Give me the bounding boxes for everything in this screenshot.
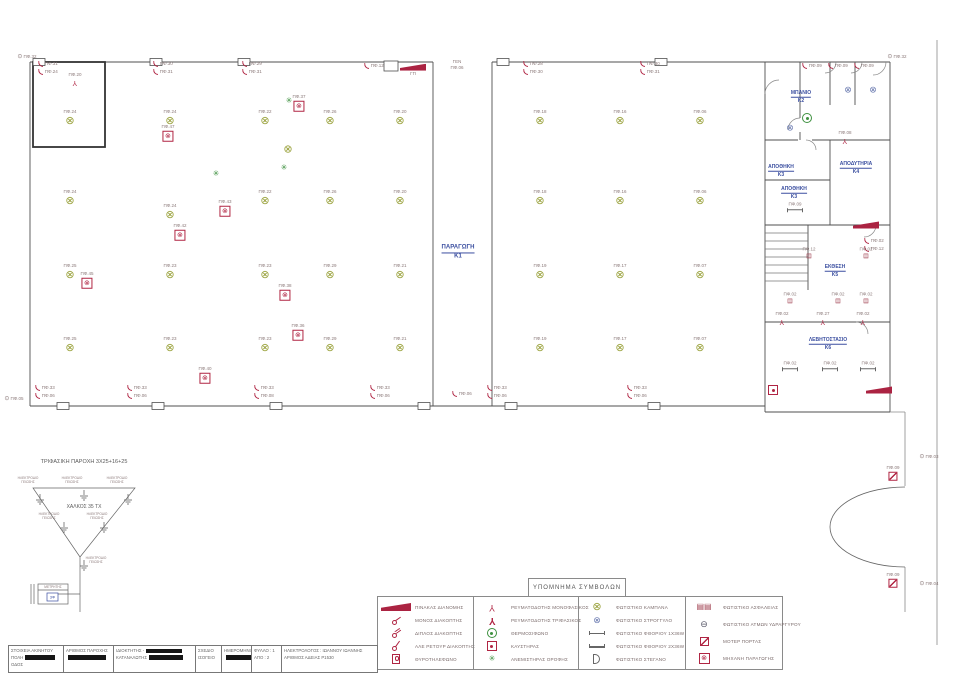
title-block-cell: ΗΛΕΚΤΡΟΛΟΓΟΣ : ΙΩΑΝΝΟΥ ΙΩΑΝΝΗΣΑΡΙΘΜΟΣ ΑΔ… xyxy=(281,646,377,672)
title-block-cell: ΣΤΟΙΧΕΙΑ ΑΚΙΝΗΤΟΥΠΟΛΗΟΔΟΣ xyxy=(9,646,63,672)
motor-icon xyxy=(689,637,719,646)
title-block-cell: ΙΔΙΟΚΤΗΤΗΣ -ΚΑΤΑΝΑΛΩΤΗΣ xyxy=(113,646,195,672)
legend-entry-thermo: ΘΕΡΜΟΣΙΦΩΝΟ xyxy=(477,627,576,639)
symbol-legend: ΠΙΝΑΚΑΣ ΔΙΑΝΟΜΗΣΜΟΝΟΣ ΔΙΑΚΟΠΤΗΣΔΙΠΛΟΣ ΔΙ… xyxy=(377,596,783,670)
switch2-icon xyxy=(381,629,411,638)
title-block-cell: ΑΡΙΘΜΟΣ ΠΑΡΟΧΗΣ xyxy=(63,646,113,672)
meter-type-label: 3Φ xyxy=(50,595,55,600)
round-icon: ⊗ xyxy=(582,616,612,625)
supply-title: ΤΡΙΦΑΣΙΚΗ ΠΑΡΟΧΗ 3Χ25+16+25 xyxy=(41,459,128,465)
ground-electrode-label: ΗΛΕΚΤΡΟΔΙΟ ΓΕΙΩΣΗΣ xyxy=(83,556,109,564)
legend-column: ΠΙΝΑΚΑΣ ΔΙΑΝΟΜΗΣΜΟΝΟΣ ΔΙΑΚΟΠΤΗΣΔΙΠΛΟΣ ΔΙ… xyxy=(378,597,473,669)
legend-entry-fan: ✳ΑΝΕΜΙΣΤΗΡΑΣ ΟΡΟΦΗΣ xyxy=(477,653,576,665)
light-icon: ⊗ xyxy=(582,602,612,613)
ground-electrode-label: ΗΛΕΚΤΡΟΔΙΟ ΓΕΙΩΣΗΣ xyxy=(15,476,41,484)
ground-electrode-label: ΗΛΕΚΤΡΟΔΙΟ ΓΕΙΩΣΗΣ xyxy=(84,512,110,520)
legend-entry-burner: ΚΑΥΣΤΗΡΑΣ xyxy=(477,640,576,652)
title-block-cell: ΗΜΕΡΟΜΗΝΙΑ xyxy=(221,646,251,672)
switchar-icon xyxy=(381,642,411,651)
legend-entry-switch1: ΜΟΝΟΣ ΔΙΑΚΟΠΤΗΣ xyxy=(381,614,471,626)
legend-entry-mercury: ⊖ΦΩΤΙΣΤΙΚΟ ΑΤΜΩΝ ΥΔΡΑΡΓΥΡΟΥ xyxy=(689,618,780,630)
legend-entry-doorphone: ΘΥΡΟΤΗΛΕΦΩΝΟ xyxy=(381,653,471,665)
legend-entry-motor: ΜΟΤΕΡ ΠΟΡΤΑΣ xyxy=(689,636,780,648)
legend-entry-light: ⊗ΦΩΤΙΣΤΙΚΟ ΚΑΜΠΑΝΑ xyxy=(582,601,683,613)
room-label: ΑΠΟΔΥΤΗΡΙΑΚ4 xyxy=(840,161,872,176)
fluor2-icon xyxy=(582,644,612,648)
ground-electrode-label: ΗΛΕΚΤΡΟΔΙΟ ΓΕΙΩΣΗΣ xyxy=(36,512,62,520)
room-label: ΕΚΘΕΣΗΚ5 xyxy=(825,264,846,279)
title-block: ΣΤΟΙΧΕΙΑ ΑΚΙΝΗΤΟΥΠΟΛΗΟΔΟΣΑΡΙΘΜΟΣ ΠΑΡΟΧΗΣ… xyxy=(8,645,378,673)
ground-electrode-label: ΗΛΕΚΤΡΟΔΙΟ ΓΕΙΩΣΗΣ xyxy=(104,476,130,484)
legend-entry-fluor2: ΦΩΤΙΣΤΙΚΟ ΦΘΟΡΙΟΥ 2Χ36W xyxy=(582,640,683,652)
sealed-icon xyxy=(582,654,612,664)
title-block-cell: ΣΧΕΔΙΟΙΣΟΓΕΙΟ xyxy=(195,646,221,672)
meter-label: ΜΕΤΡΗΤΗΣ xyxy=(44,585,61,589)
switch1-icon xyxy=(381,616,411,625)
room-label: ΑΠΟΘΗΚΗΚ3 xyxy=(781,186,807,201)
supply-conductor-label: ΧΑΛΚΟΣ 35 ΤΧ xyxy=(67,504,102,510)
legend-column: ⊗ΦΩΤΙΣΤΙΚΟ ΚΑΜΠΑΝΑ⊗ΦΩΤΙΣΤΙΚΟ ΣΤΡΟΓΓΥΛΟΦΩ… xyxy=(578,597,685,669)
room-label: ΜΠΑΝΙΟΚ2 xyxy=(791,90,811,105)
legend-entry-switch2: ΔΙΠΛΟΣ ΔΙΑΚΟΠΤΗΣ xyxy=(381,627,471,639)
fan-icon: ✳ xyxy=(477,655,507,663)
legend-entry-switchar: ΑΛΕ ΡΕΤΟΥΡ ΔΙΑΚΟΠΤΗΣ xyxy=(381,640,471,652)
room-label: ΑΠΟΘΗΚΗΚ3 xyxy=(768,164,794,179)
machine-icon: ⊗ xyxy=(689,653,719,664)
legend-entry-socket3: YΡΕΥΜΑΤΟΔΟΤΗΣ ΤΡΙΦΑΣΙΚΟΣ xyxy=(477,614,576,626)
legend-entry-safety: ▤▤ΦΩΤΙΣΤΙΚΟ ΑΣΦΑΛΕΙΑΣ xyxy=(689,601,780,613)
safety-icon: ▤▤ xyxy=(689,603,719,611)
socket3-icon: Y xyxy=(477,615,507,625)
room-label: ΠΑΡΑΓΩΓΗΚ1 xyxy=(442,244,475,261)
room-label: ΛΕΒΗΤΟΣΤΑΣΙΟΚ6 xyxy=(809,337,847,352)
fluor1-icon xyxy=(582,631,612,635)
legend-title: ΥΠΟΜΝΗΜΑ ΣΥΜΒΟΛΩΝ xyxy=(528,578,626,598)
title-block-cell: ΦΥΛΛΟ : 1ΑΠΟ : 2 xyxy=(251,646,281,672)
legend-column: YΡΕΥΜΑΤΟΔΟΤΗΣ ΜΟΝΟΦΑΣΙΚΟΣYΡΕΥΜΑΤΟΔΟΤΗΣ Τ… xyxy=(473,597,578,669)
legend-entry-fluor1: ΦΩΤΙΣΤΙΚΟ ΦΘΟΡΙΟΥ 1Χ36W xyxy=(582,627,683,639)
ground-electrode-label: ΗΛΕΚΤΡΟΔΙΟ ΓΕΙΩΣΗΣ xyxy=(59,476,85,484)
legend-entry-socket1: YΡΕΥΜΑΤΟΔΟΤΗΣ ΜΟΝΟΦΑΣΙΚΟΣ xyxy=(477,601,576,613)
panel-icon xyxy=(381,603,411,611)
legend-entry-round: ⊗ΦΩΤΙΣΤΙΚΟ ΣΤΡΟΓΓΥΛΟ xyxy=(582,614,683,626)
electrical-floor-plan-sheet: ΠΦ.24⊗ΠΦ.24⊗ΠΦ.22⊗ΠΦ.26⊗ΠΦ.20⊗ΠΦ.24⊗ΠΦ.2… xyxy=(0,0,960,679)
socket1-icon: Y xyxy=(477,603,507,612)
doorphone-icon xyxy=(381,654,411,664)
burner-icon xyxy=(477,641,507,651)
legend-entry-machine: ⊗ΜΗΧΑΝΗ ΠΑΡΑΓΩΓΗΣ xyxy=(689,653,780,665)
thermo-icon xyxy=(477,628,507,638)
legend-column: ▤▤ΦΩΤΙΣΤΙΚΟ ΑΣΦΑΛΕΙΑΣ⊖ΦΩΤΙΣΤΙΚΟ ΑΤΜΩΝ ΥΔ… xyxy=(685,597,782,669)
legend-entry-sealed: ΦΩΤΙΣΤΙΚΟ ΣΤΕΓΑΝΟ xyxy=(582,653,683,665)
legend-entry-panel: ΠΙΝΑΚΑΣ ΔΙΑΝΟΜΗΣ xyxy=(381,601,471,613)
mercury-icon: ⊖ xyxy=(689,620,719,629)
